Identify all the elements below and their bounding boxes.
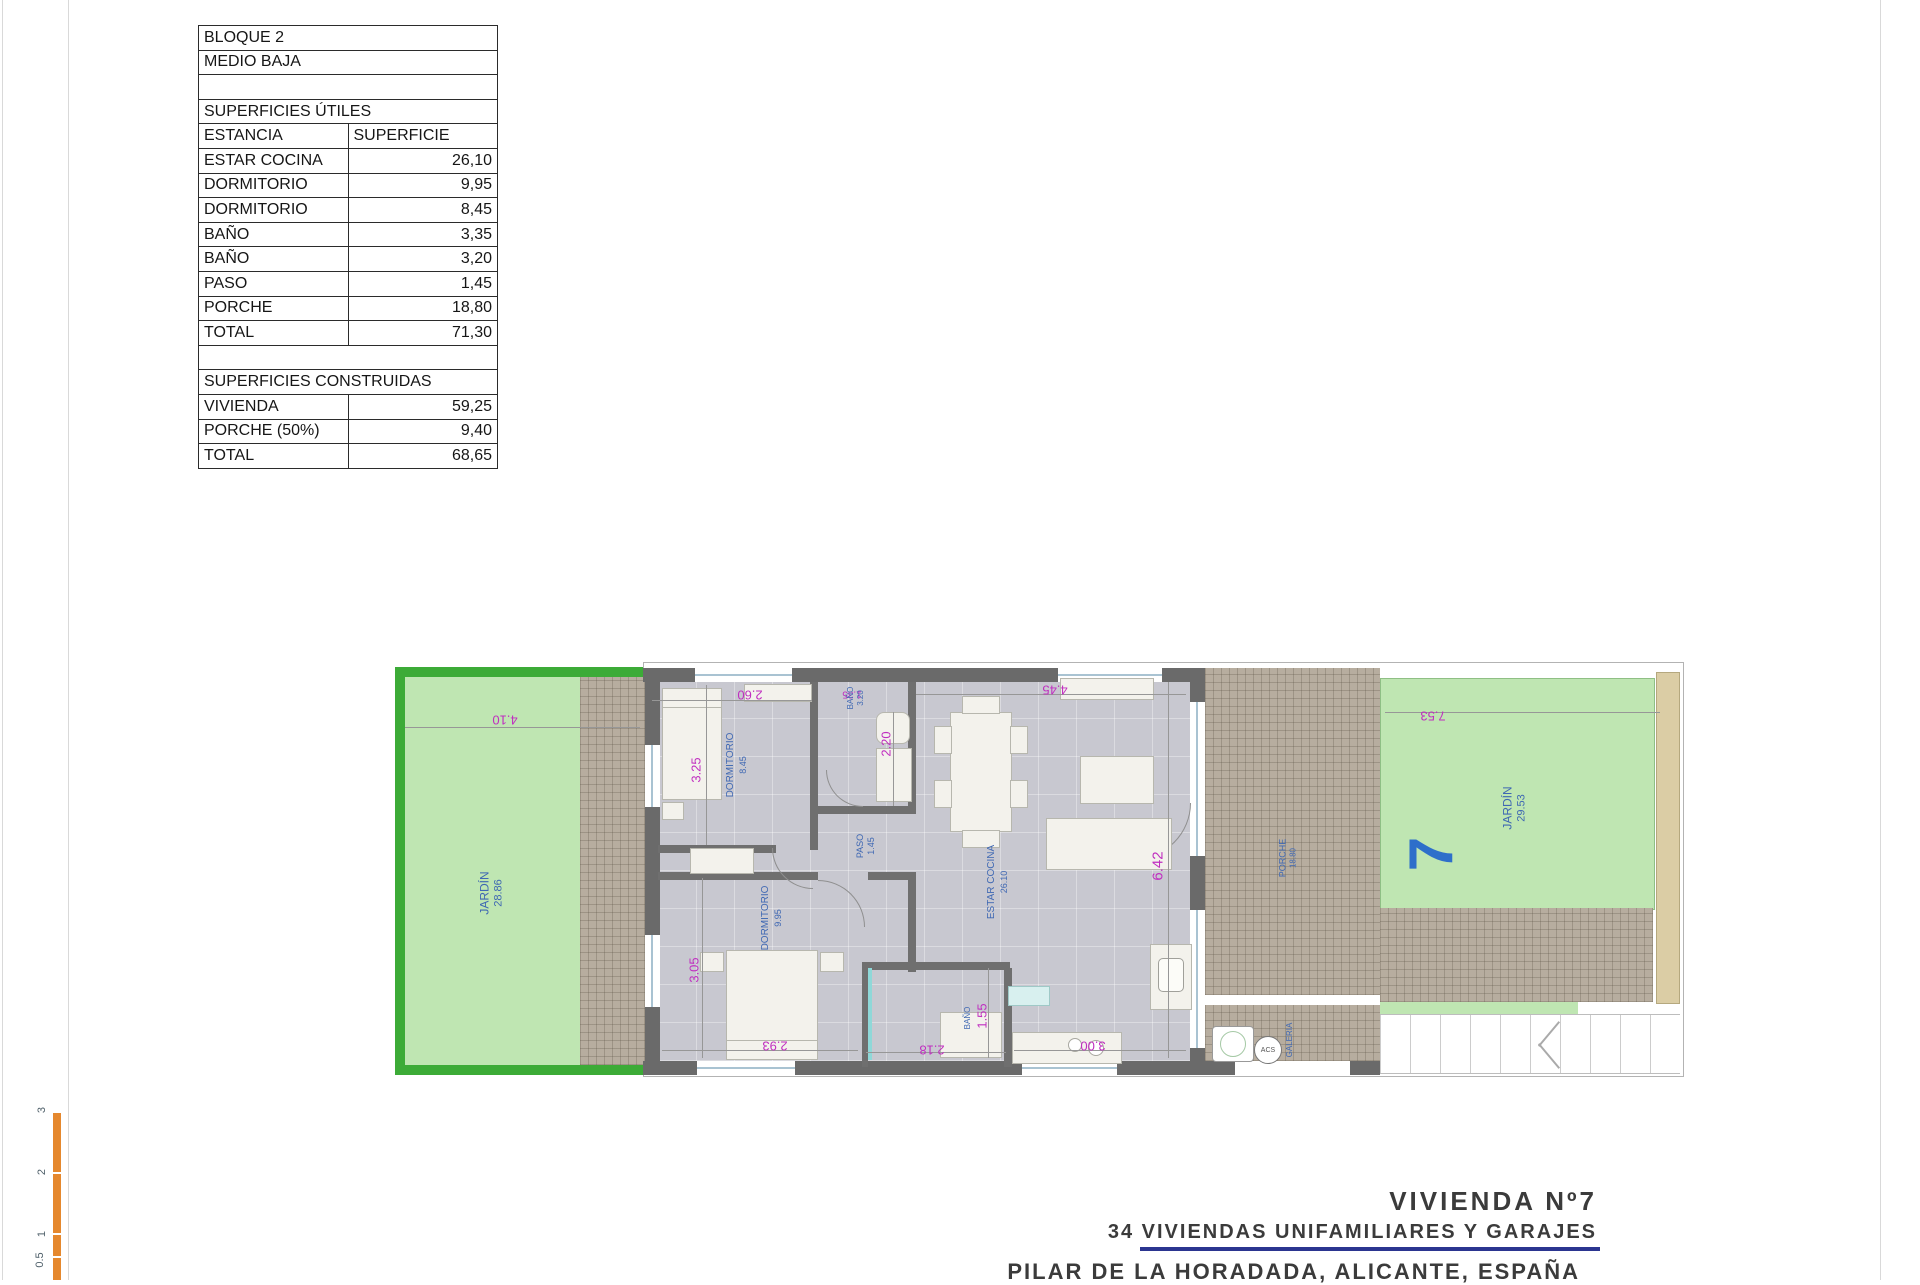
label-porche: PORCHE 18.80 [1277,839,1298,878]
table-cell: 59,25 [348,394,498,419]
left-garden-border-bottom [395,1065,643,1075]
dim-bano2-h: 1.55 [975,1003,990,1028]
table-row: ESTANCIASUPERFICIE [199,124,498,149]
scale-bar-segment [53,1113,61,1172]
boundary-strip [1656,672,1680,1004]
shower-screen [868,968,872,1060]
dim-dorm1-h: 3.25 [689,757,704,782]
dim-line [706,685,707,845]
table-cell: VIVIENDA [199,394,349,419]
label-galeria: GALERIA [1285,1023,1295,1058]
left-garden-border-left [395,667,405,1075]
table-cell: TOTAL [199,321,349,346]
table-row: PORCHE (50%)9,40 [199,419,498,444]
coffee-table [1080,756,1154,804]
galeria-threshold [1205,995,1380,1005]
sheet: { "table": { "rows": [ {"label":"BLOQUE … [0,0,1920,1280]
chair [934,726,952,754]
washing-machine-icon [1212,1026,1254,1062]
title-rule [1140,1247,1600,1251]
acs-label: ACS [1261,1047,1275,1054]
table-cell: 3,35 [348,222,498,247]
table-cell: BAÑO [199,247,349,272]
table-row: ESTAR COCINA26,10 [199,148,498,173]
room-area: 18.80 [1289,839,1299,878]
table-cell: SUPERFICIES CONSTRUIDAS [199,370,498,395]
wall-stub [1205,1061,1235,1075]
dim-dorm1-w: 2.60 [737,688,762,703]
table-cell: 1,45 [348,271,498,296]
window-glass [1022,1067,1117,1069]
table-cell: PORCHE [199,296,349,321]
table-cell: MEDIO BAJA [199,50,498,75]
scale-bar-segment [53,1174,61,1233]
room-area: 8.45 [738,733,749,798]
table-cell [199,345,498,370]
chair [1010,726,1028,754]
table-row: BLOQUE 2 [199,26,498,51]
unit-number: 7 [1397,837,1468,871]
table-row: SUPERFICIES ÚTILES [199,99,498,124]
entry-paving-left [580,677,645,1065]
table-cell: 8,45 [348,198,498,223]
window-glass [651,935,653,1007]
dim-bano1-h: 2.20 [879,731,894,756]
table-cell: PORCHE (50%) [199,419,349,444]
superficies-table: BLOQUE 2 MEDIO BAJA SUPERFICIES ÚTILES E… [198,25,498,469]
dim-bano2-w: 2.18 [919,1043,944,1058]
table-row: MEDIO BAJA [199,50,498,75]
window-glass [1058,674,1162,676]
table-row: DORMITORIO9,95 [199,173,498,198]
right-garden-strip [1380,1002,1578,1014]
table-cell: DORMITORIO [199,198,349,223]
room-area: 26.10 [999,845,1010,919]
dim-line [1168,682,1169,1058]
window-glass [695,674,792,676]
frame-line-left-inner [68,0,69,1280]
room-name: BAÑO [846,687,856,710]
scale-bar-segment [53,1235,61,1256]
table-cell: 9,40 [348,419,498,444]
sliding-door [1190,910,1205,1048]
room-name: BAÑO [963,1007,973,1030]
chair [962,696,1000,714]
scale-label-3: 3 [36,1107,48,1113]
dim-line [662,1050,858,1051]
closet [690,848,754,874]
dim-line [652,700,812,701]
scale-label-1: 1 [36,1231,48,1237]
dim-line [702,878,703,1058]
stairs [1380,1014,1680,1074]
dim-garden-left: 4.10 [492,713,517,728]
window [645,745,660,807]
table-row: TOTAL71,30 [199,321,498,346]
table-cell [199,75,498,100]
table-cell: 71,30 [348,321,498,346]
room-name: DORMITORIO [760,886,773,951]
table-row: PORCHE18,80 [199,296,498,321]
kitchen-counter-accent [1008,986,1050,1006]
dim-garden-right: 7.53 [1420,709,1445,724]
sink-basin [1158,958,1184,992]
window-glass [1196,910,1198,1048]
chair [1010,780,1028,808]
window-glass [697,1067,795,1069]
bed-pillow [662,688,722,708]
room-name: JARDÍN [478,871,493,914]
title-line-3: PILAR DE LA HORADADA, ALICANTE, ESPAÑA [1007,1259,1580,1285]
room-area: 9.95 [773,886,784,951]
scale-label-05: 0.5 [34,1252,46,1267]
table-cell: 9,95 [348,173,498,198]
table-row: PASO1,45 [199,271,498,296]
dim-line [893,712,894,806]
wall-dorm2-estar [908,880,916,972]
dining-table [950,712,1012,832]
tv-bench [1060,678,1154,700]
room-name: DORMITORIO [725,733,738,798]
table-row [199,75,498,100]
table-cell: BAÑO [199,222,349,247]
frame-line-right [1880,0,1881,1280]
window [697,1061,795,1075]
table-cell: ESTANCIA [199,124,349,149]
table-cell: 26,10 [348,148,498,173]
nightstand [700,952,724,972]
nightstand [662,802,684,820]
nightstand [820,952,844,972]
table-cell: PASO [199,271,349,296]
table-cell: ESTAR COCINA [199,148,349,173]
dim-estar-h: 6.42 [1150,851,1167,880]
window [645,935,660,1007]
table-row: SUPERFICIES CONSTRUIDAS [199,370,498,395]
wall-dorm1-bano1 [810,682,818,850]
right-paving [1380,908,1653,1002]
table-cell: BLOQUE 2 [199,26,498,51]
table-row: BAÑO3,20 [199,247,498,272]
title-line-1: VIVIENDA Nº7 [1389,1186,1597,1217]
table-cell: 68,65 [348,444,498,469]
table-cell: 18,80 [348,296,498,321]
dim-dorm2-h: 3.05 [687,957,702,982]
table-row [199,345,498,370]
scale-label-2: 2 [36,1169,48,1175]
room-area: 28.86 [493,871,507,914]
scale-bar-segment [53,1258,61,1280]
label-paso: PASO 1.45 [855,834,878,858]
wall-stub [1350,1061,1380,1075]
washing-machine-drum [1220,1031,1246,1057]
label-jardin-left: JARDÍN 28.86 [478,871,507,914]
chair [934,780,952,808]
label-dormitorio-2: DORMITORIO 9.95 [760,886,784,951]
porche-paving [1205,668,1380,995]
dim-line [405,727,640,728]
window-glass [1196,702,1198,856]
room-name: PASO [855,834,866,858]
room-area: 1.45 [866,834,877,858]
room-name: PORCHE [1277,839,1288,878]
table-cell: SUPERFICIE [348,124,498,149]
wall-paso-stub [868,872,916,880]
label-dormitorio-1: DORMITORIO 8.45 [725,733,749,798]
left-garden-border-top [395,667,643,677]
room-name: JARDÍN [1501,786,1516,829]
dim-estar-w: 4.45 [1042,683,1067,698]
wall-bano1-bottom [818,806,916,814]
acs-icon: ACS [1254,1036,1282,1064]
label-bano-1: BAÑO 3.20 [846,687,866,710]
room-area: 3.20 [856,687,866,710]
label-bano-2: BAÑO [963,1007,973,1030]
table-cell: DORMITORIO [199,173,349,198]
table-cell: SUPERFICIES ÚTILES [199,99,498,124]
table-row: BAÑO3,35 [199,222,498,247]
label-jardin-right: JARDÍN 29.53 [1501,786,1530,829]
table-cell: TOTAL [199,444,349,469]
dim-cocina-w: 3.00 [1080,1039,1105,1054]
frame-line-left-outer [2,0,3,1280]
label-estar-cocina: ESTAR COCINA 26.10 [986,845,1010,919]
room-area: 29.53 [1516,786,1530,829]
table-row: VIVIENDA59,25 [199,394,498,419]
table-row: DORMITORIO8,45 [199,198,498,223]
sliding-door [1190,702,1205,856]
table-cell: 3,20 [348,247,498,272]
window-glass [651,745,653,807]
window [695,668,792,682]
table-row: TOTAL68,65 [199,444,498,469]
room-name: GALERIA [1285,1023,1295,1058]
dim-dorm2-w: 2.93 [762,1039,787,1054]
title-line-2: 34 VIVIENDAS UNIFAMILIARES Y GARAJES [1108,1221,1597,1244]
room-name: ESTAR COCINA [986,845,999,919]
